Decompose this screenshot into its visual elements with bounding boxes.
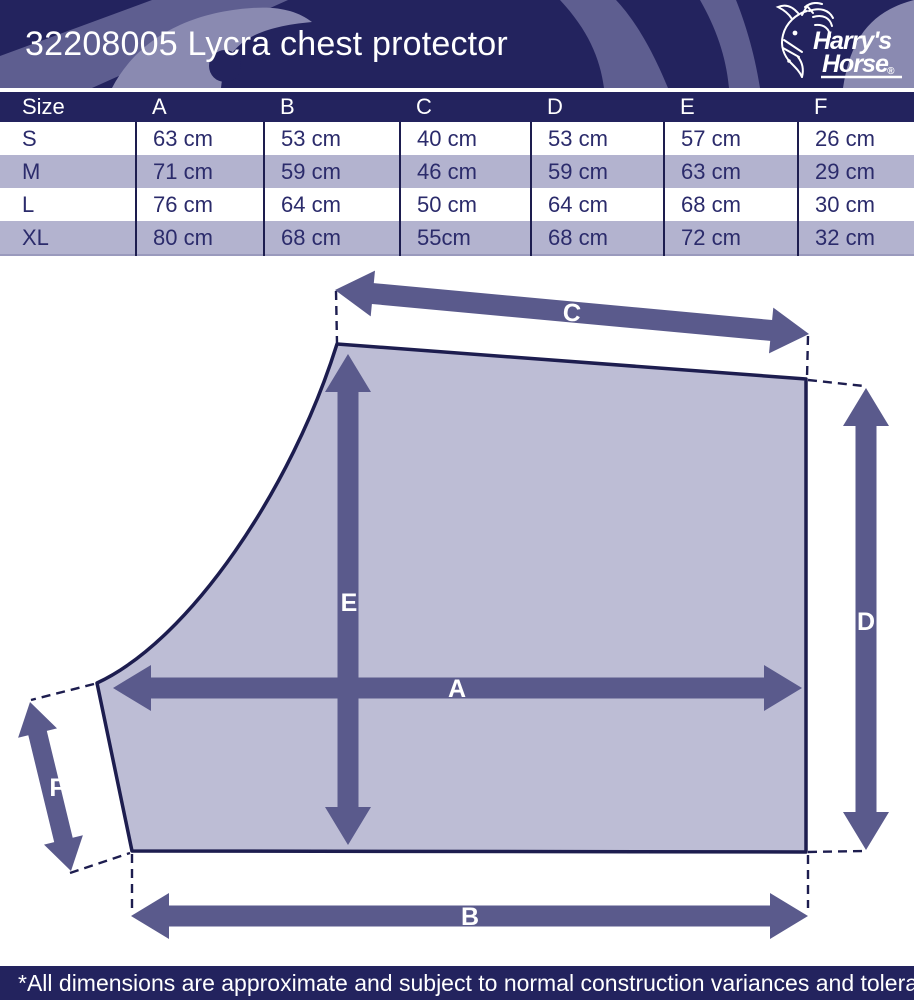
size-table: Size A B C D E F S 63 cm 53 cm 40 cm 53 … bbox=[0, 92, 914, 256]
value-cell: 55cm bbox=[400, 221, 531, 255]
value-cell: 64 cm bbox=[531, 188, 664, 221]
header-cell-b: B bbox=[264, 92, 400, 122]
size-table-header: Size A B C D E F bbox=[0, 92, 914, 122]
measurement-diagram: A B C D E F bbox=[0, 254, 914, 966]
dim-label-c: C bbox=[562, 298, 583, 328]
header-cell-e: E bbox=[664, 92, 798, 122]
header-banner: 32208005 Lycra chest protector Harry's H… bbox=[0, 0, 914, 88]
value-cell: 40 cm bbox=[400, 122, 531, 155]
table-row-l: L 76 cm 64 cm 50 cm 64 cm 68 cm 30 cm bbox=[0, 188, 914, 221]
value-cell: 50 cm bbox=[400, 188, 531, 221]
footer-bar: *All dimensions are approximate and subj… bbox=[0, 966, 914, 1000]
table-row-s: S 63 cm 53 cm 40 cm 53 cm 57 cm 26 cm bbox=[0, 122, 914, 155]
header-cell-d: D bbox=[531, 92, 664, 122]
horse-nostril bbox=[787, 59, 791, 63]
value-cell: 30 cm bbox=[798, 188, 914, 221]
dim-label-f: F bbox=[49, 774, 64, 802]
value-cell: 68 cm bbox=[664, 188, 798, 221]
size-chart-page: 32208005 Lycra chest protector Harry's H… bbox=[0, 0, 914, 1000]
chest-protector-panel bbox=[97, 344, 806, 852]
value-cell: 72 cm bbox=[664, 221, 798, 255]
value-cell: 57 cm bbox=[664, 122, 798, 155]
table-row-xl: XL 80 cm 68 cm 55cm 68 cm 72 cm 32 cm bbox=[0, 221, 914, 255]
value-cell: 59 cm bbox=[531, 155, 664, 188]
disclaimer-text: *All dimensions are approximate and subj… bbox=[0, 970, 914, 997]
value-cell: 26 cm bbox=[798, 122, 914, 155]
header-cell-f: F bbox=[798, 92, 914, 122]
dim-label-e: E bbox=[341, 589, 358, 617]
value-cell: 32 cm bbox=[798, 221, 914, 255]
dim-label-b: B bbox=[461, 903, 479, 931]
horse-eye bbox=[793, 31, 798, 36]
value-cell: 46 cm bbox=[400, 155, 531, 188]
harrys-horse-logo: Harry's Horse ® bbox=[758, 2, 910, 86]
header-cell-a: A bbox=[136, 92, 264, 122]
value-cell: 29 cm bbox=[798, 155, 914, 188]
size-label: M bbox=[0, 155, 136, 188]
value-cell: 59 cm bbox=[264, 155, 400, 188]
registered-mark: ® bbox=[887, 66, 895, 77]
size-label: XL bbox=[0, 221, 136, 255]
value-cell: 76 cm bbox=[136, 188, 264, 221]
value-cell: 68 cm bbox=[531, 221, 664, 255]
size-label: S bbox=[0, 122, 136, 155]
size-label: L bbox=[0, 188, 136, 221]
value-cell: 53 cm bbox=[531, 122, 664, 155]
value-cell: 68 cm bbox=[264, 221, 400, 255]
page-title: 32208005 Lycra chest protector bbox=[25, 0, 508, 88]
dim-label-a: A bbox=[448, 675, 466, 703]
value-cell: 80 cm bbox=[136, 221, 264, 255]
value-cell: 71 cm bbox=[136, 155, 264, 188]
dim-label-d: D bbox=[857, 608, 875, 636]
logo-text-horse: Horse bbox=[822, 50, 889, 78]
table-row-m: M 71 cm 59 cm 46 cm 59 cm 63 cm 29 cm bbox=[0, 155, 914, 188]
header-cell-size: Size bbox=[0, 92, 136, 122]
value-cell: 64 cm bbox=[264, 188, 400, 221]
value-cell: 53 cm bbox=[264, 122, 400, 155]
header-cell-c: C bbox=[400, 92, 531, 122]
value-cell: 63 cm bbox=[664, 155, 798, 188]
value-cell: 63 cm bbox=[136, 122, 264, 155]
